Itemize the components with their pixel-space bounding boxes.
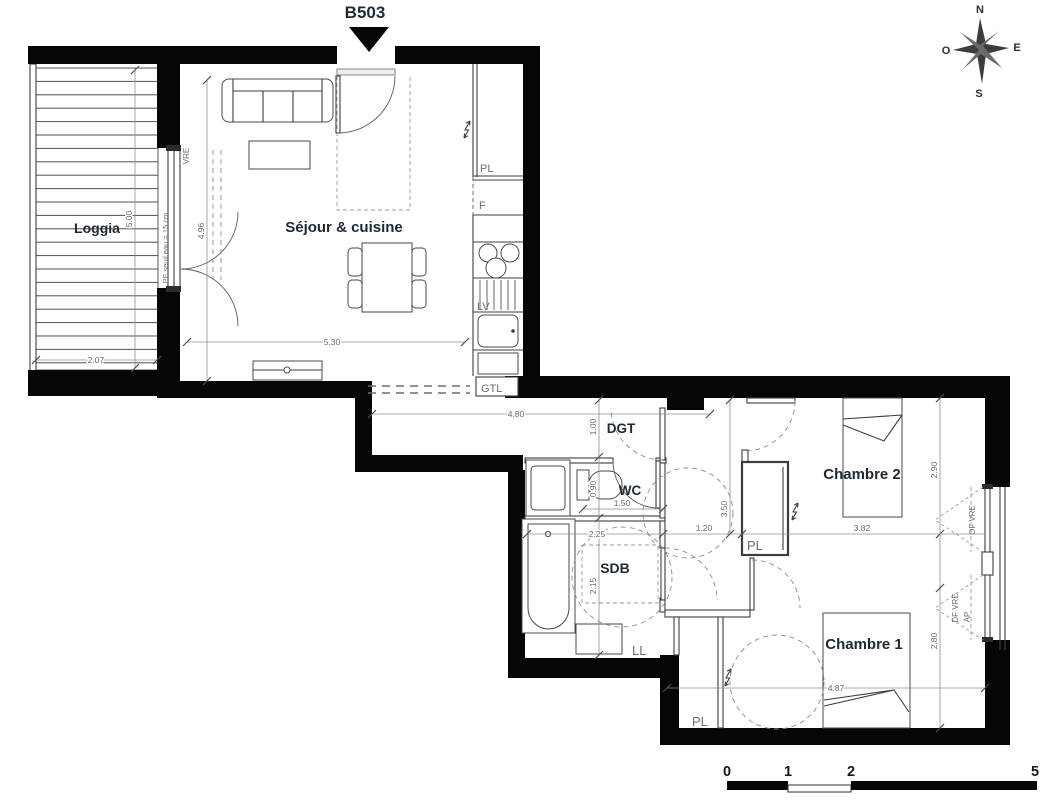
dim-chambre2-height: 2.90 [929, 461, 939, 478]
sink-icon [478, 315, 518, 347]
compass-rose-icon: N E S O [942, 4, 1021, 100]
room-label-wc: WC [619, 483, 642, 498]
room-label-chambre2: Chambre 2 [823, 466, 901, 483]
interior-walls [166, 145, 788, 728]
sliding-door-arrow-icon [464, 121, 470, 138]
dim-sejour-width: 5.30 [324, 337, 341, 347]
sofa-icon [222, 79, 333, 122]
dim-chambre1-width: 4.87 [828, 683, 845, 693]
scale-1: 1 [784, 764, 792, 780]
compass-west-label: O [942, 45, 951, 57]
dining-table-icon [348, 243, 426, 312]
toilet-icon [577, 470, 622, 500]
dim-sejour-height: 4.96 [196, 222, 206, 239]
label-fridge: F [479, 200, 486, 212]
scale-0: 0 [723, 764, 731, 780]
kitchen-unit [478, 353, 518, 374]
bathtub-icon [522, 519, 575, 633]
room-label-sejour: Séjour & cuisine [285, 219, 403, 236]
bed-chambre1-icon [823, 613, 910, 728]
compass-south-label: S [975, 88, 982, 100]
dim-wc-width: 1.50 [614, 498, 631, 508]
kitchen-counter [464, 64, 523, 396]
label-washer: LL [632, 643, 646, 658]
room-label-sdb: SDB [600, 560, 630, 576]
turning-circle [572, 527, 672, 627]
dim-loggia-width: 2.07 [88, 355, 105, 365]
room-label-chambre1: Chambre 1 [825, 636, 903, 653]
label-vre-window: VRE [182, 148, 191, 164]
dim-night-hall-width: 1.20 [696, 523, 713, 533]
label-df-vre-window: DF VRE [951, 593, 960, 622]
floorplan-page: B503 N E S O [0, 0, 1042, 800]
bed-chambre2-icon [843, 398, 902, 517]
sliding-door-arrow-icon [792, 503, 798, 520]
entrance-door-arc [340, 76, 395, 133]
label-ap: AP [963, 612, 972, 623]
coffee-table-icon [249, 141, 310, 169]
room-label-loggia: Loggia [74, 220, 120, 236]
entrance-threshold [337, 69, 395, 75]
scale-bar: 0 1 2 5 [723, 764, 1039, 792]
dim-chambre2-width: 3.82 [854, 523, 871, 533]
label-placard-kitchen: PL [480, 163, 493, 175]
label-gtl: GTL [481, 383, 502, 395]
loggia-deck-hatch [30, 64, 158, 372]
label-placard-chambre2: PL [747, 538, 763, 553]
dim-loggia-height: 5.00 [124, 210, 134, 227]
cooktop-icon [479, 244, 519, 278]
label-placard-chambre1: PL [692, 714, 708, 729]
dim-sdb-height: 2.15 [588, 577, 598, 594]
label-dishwasher: LV [477, 301, 490, 313]
turning-circle [730, 635, 824, 729]
floorplan-drawing: B503 N E S O [0, 0, 1042, 800]
dim-sdb-width: 2.25 [589, 529, 606, 539]
entrance-arrow-icon [349, 27, 389, 52]
dim-dgt-width: 4.80 [508, 409, 525, 419]
compass-north-label: N [976, 4, 984, 16]
room-label-dgt: DGT [607, 421, 636, 436]
scale-2: 2 [847, 764, 855, 780]
dim-dgt-height: 1.00 [588, 418, 598, 435]
unit-number-label: B503 [345, 3, 386, 22]
compass-east-label: E [1013, 42, 1020, 54]
dim-night-hall-height: 3.50 [719, 500, 729, 517]
dim-wc-height: 0.90 [588, 480, 598, 497]
scale-5: 5 [1031, 764, 1039, 780]
dim-chambre1-height: 2.80 [929, 632, 939, 649]
label-of-vre-window: OF VRE [968, 505, 977, 535]
sideboard-icon [253, 361, 322, 380]
room-labels: Loggia Séjour & cuisine DGT WC SDB Chamb… [74, 219, 903, 653]
vanity-icon [526, 460, 570, 516]
label-pf-seuil: PF seuil eau = 15 cm [161, 213, 170, 284]
